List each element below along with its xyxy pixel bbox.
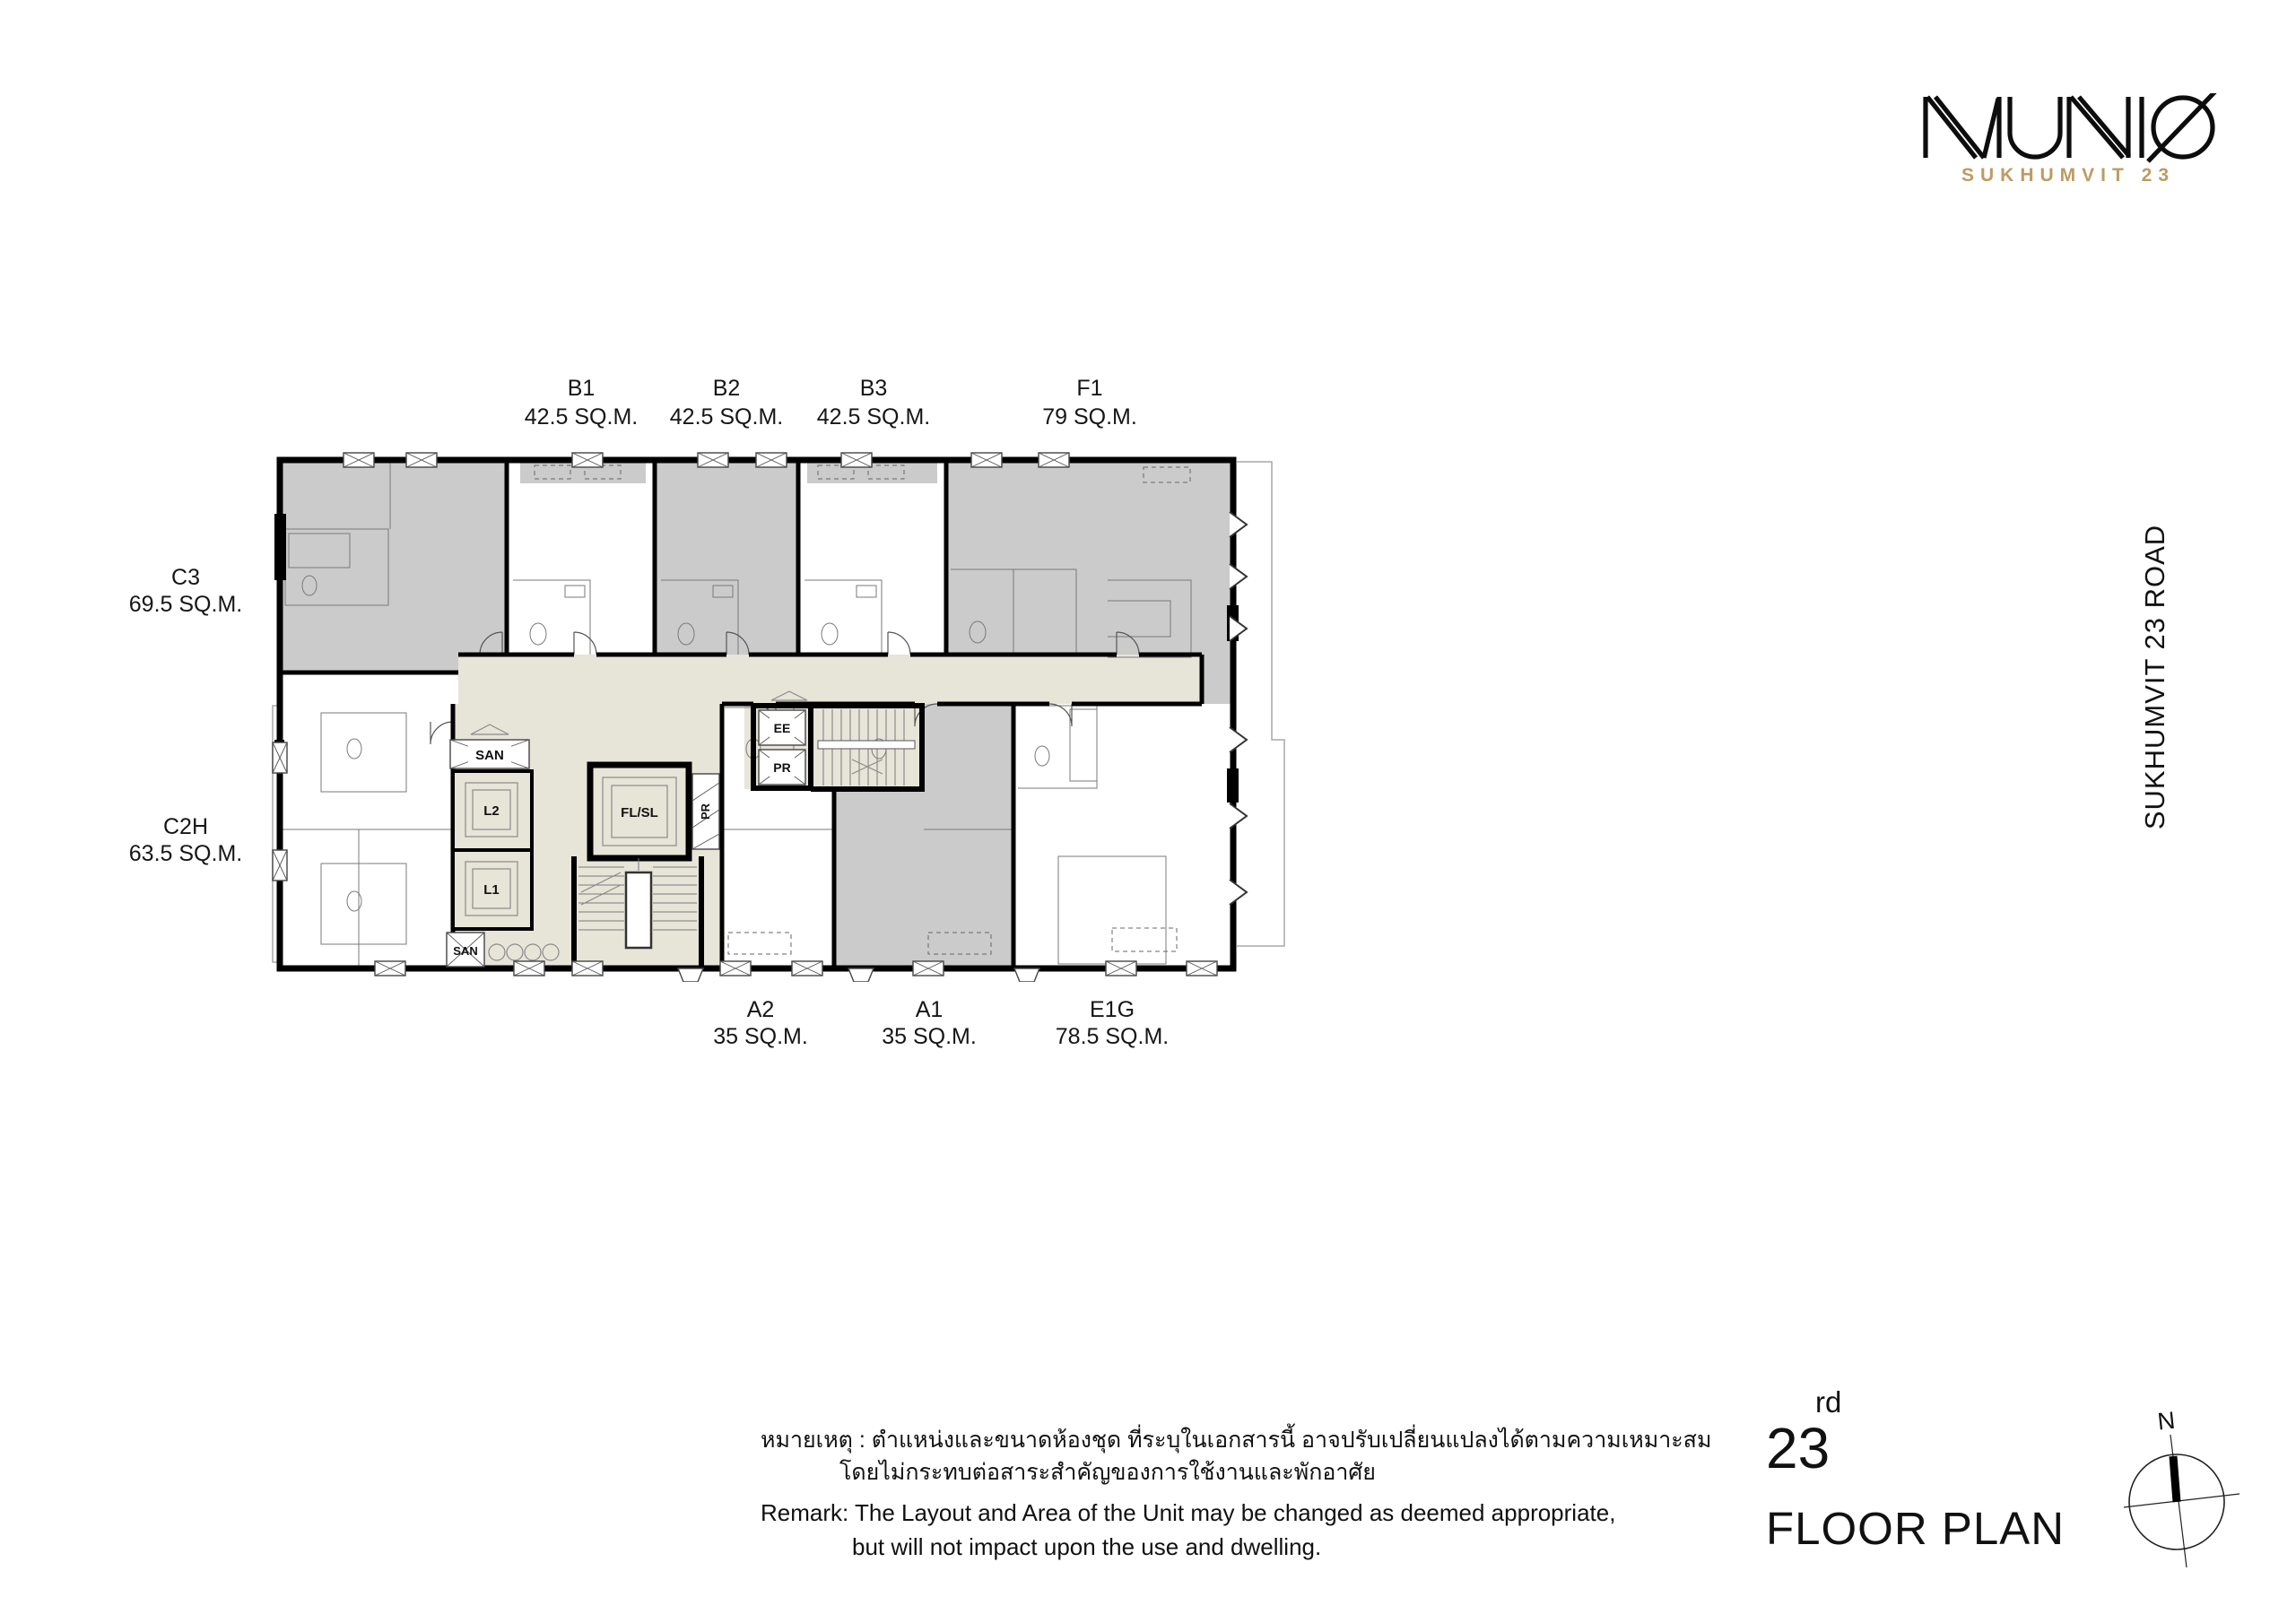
floor-number: 23 [1766,1415,1830,1481]
unit-f1-fill-ext [1202,655,1233,704]
san-bottom-label: SAN [453,944,477,958]
unit-label-f1-name: F1 [1076,377,1102,402]
lift-flsl-label: FL/SL [621,805,658,820]
unit-b2-fill [655,460,798,655]
remark-english-line2: but will not impact upon the use and dwe… [852,1533,1321,1561]
compass-north-label: N [2156,1407,2177,1436]
unit-label-c2h-area: 63.5 SQ.M. [129,842,242,867]
remark-thai-line1: หมายเหตุ : ตำแหน่งและขนาดห้องชุด ที่ระบุ… [761,1422,1711,1458]
unit-label-a1-name: A1 [916,998,944,1023]
floor-plan-drawing: SAN L2 L1 FL/SL PR [269,444,1291,982]
unit-label-a2-area: 35 SQ.M. [713,1025,808,1050]
lift-l1-label: L1 [483,882,500,898]
unit-label-b2-name: B2 [713,377,741,402]
unit-c3-fill [280,460,507,673]
floor-plan-title: FLOOR PLAN [1766,1502,2065,1555]
unit-label-e1g-area: 78.5 SQ.M. [1056,1025,1169,1050]
unit-label-a2-name: A2 [747,998,775,1023]
muniq-logo-wordmark [1922,93,2218,163]
brochure-page: SUKHUMVIT 23 SUKHUMVIT 23 ROAD [0,0,2296,1623]
logo-letter-strokes [1926,93,2215,161]
san-top-label: SAN [475,748,504,763]
unit-label-b3-area: 42.5 SQ.M. [817,405,930,430]
unit-f1-fill [946,460,1233,655]
floor-ordinal: rd [1815,1385,1841,1419]
unit-label-b1-name: B1 [568,377,596,402]
unit-label-c3-name: C3 [171,566,200,591]
unit-label-c3-area: 69.5 SQ.M. [129,593,242,618]
pr-side-label: PR [699,803,712,820]
unit-label-f1-area: 79 SQ.M. [1042,405,1137,430]
pr-label: PR [773,760,790,775]
unit-label-a1-area: 35 SQ.M. [882,1025,977,1050]
unit-label-e1g-name: E1G [1090,998,1135,1023]
road-label: SUKHUMVIT 23 ROAD [2139,498,2173,856]
unit-label-b2-area: 42.5 SQ.M. [670,405,783,430]
lift-l2-label: L2 [483,803,500,819]
logo-tagline: SUKHUMVIT 23 [1928,165,2208,187]
unit-label-b1-area: 42.5 SQ.M. [525,405,638,430]
remark-english-line1: Remark: The Layout and Area of the Unit … [761,1499,1615,1527]
corridor-band [458,655,1202,704]
ee-label: EE [774,721,791,735]
unit-label-c2h-name: C2H [163,815,208,840]
remark-thai-line2: โดยไม่กระทบต่อสาระสำคัญของการใช้งานและพั… [839,1454,1376,1490]
compass-icon: N [2108,1399,2260,1587]
unit-label-b3-name: B3 [860,377,888,402]
